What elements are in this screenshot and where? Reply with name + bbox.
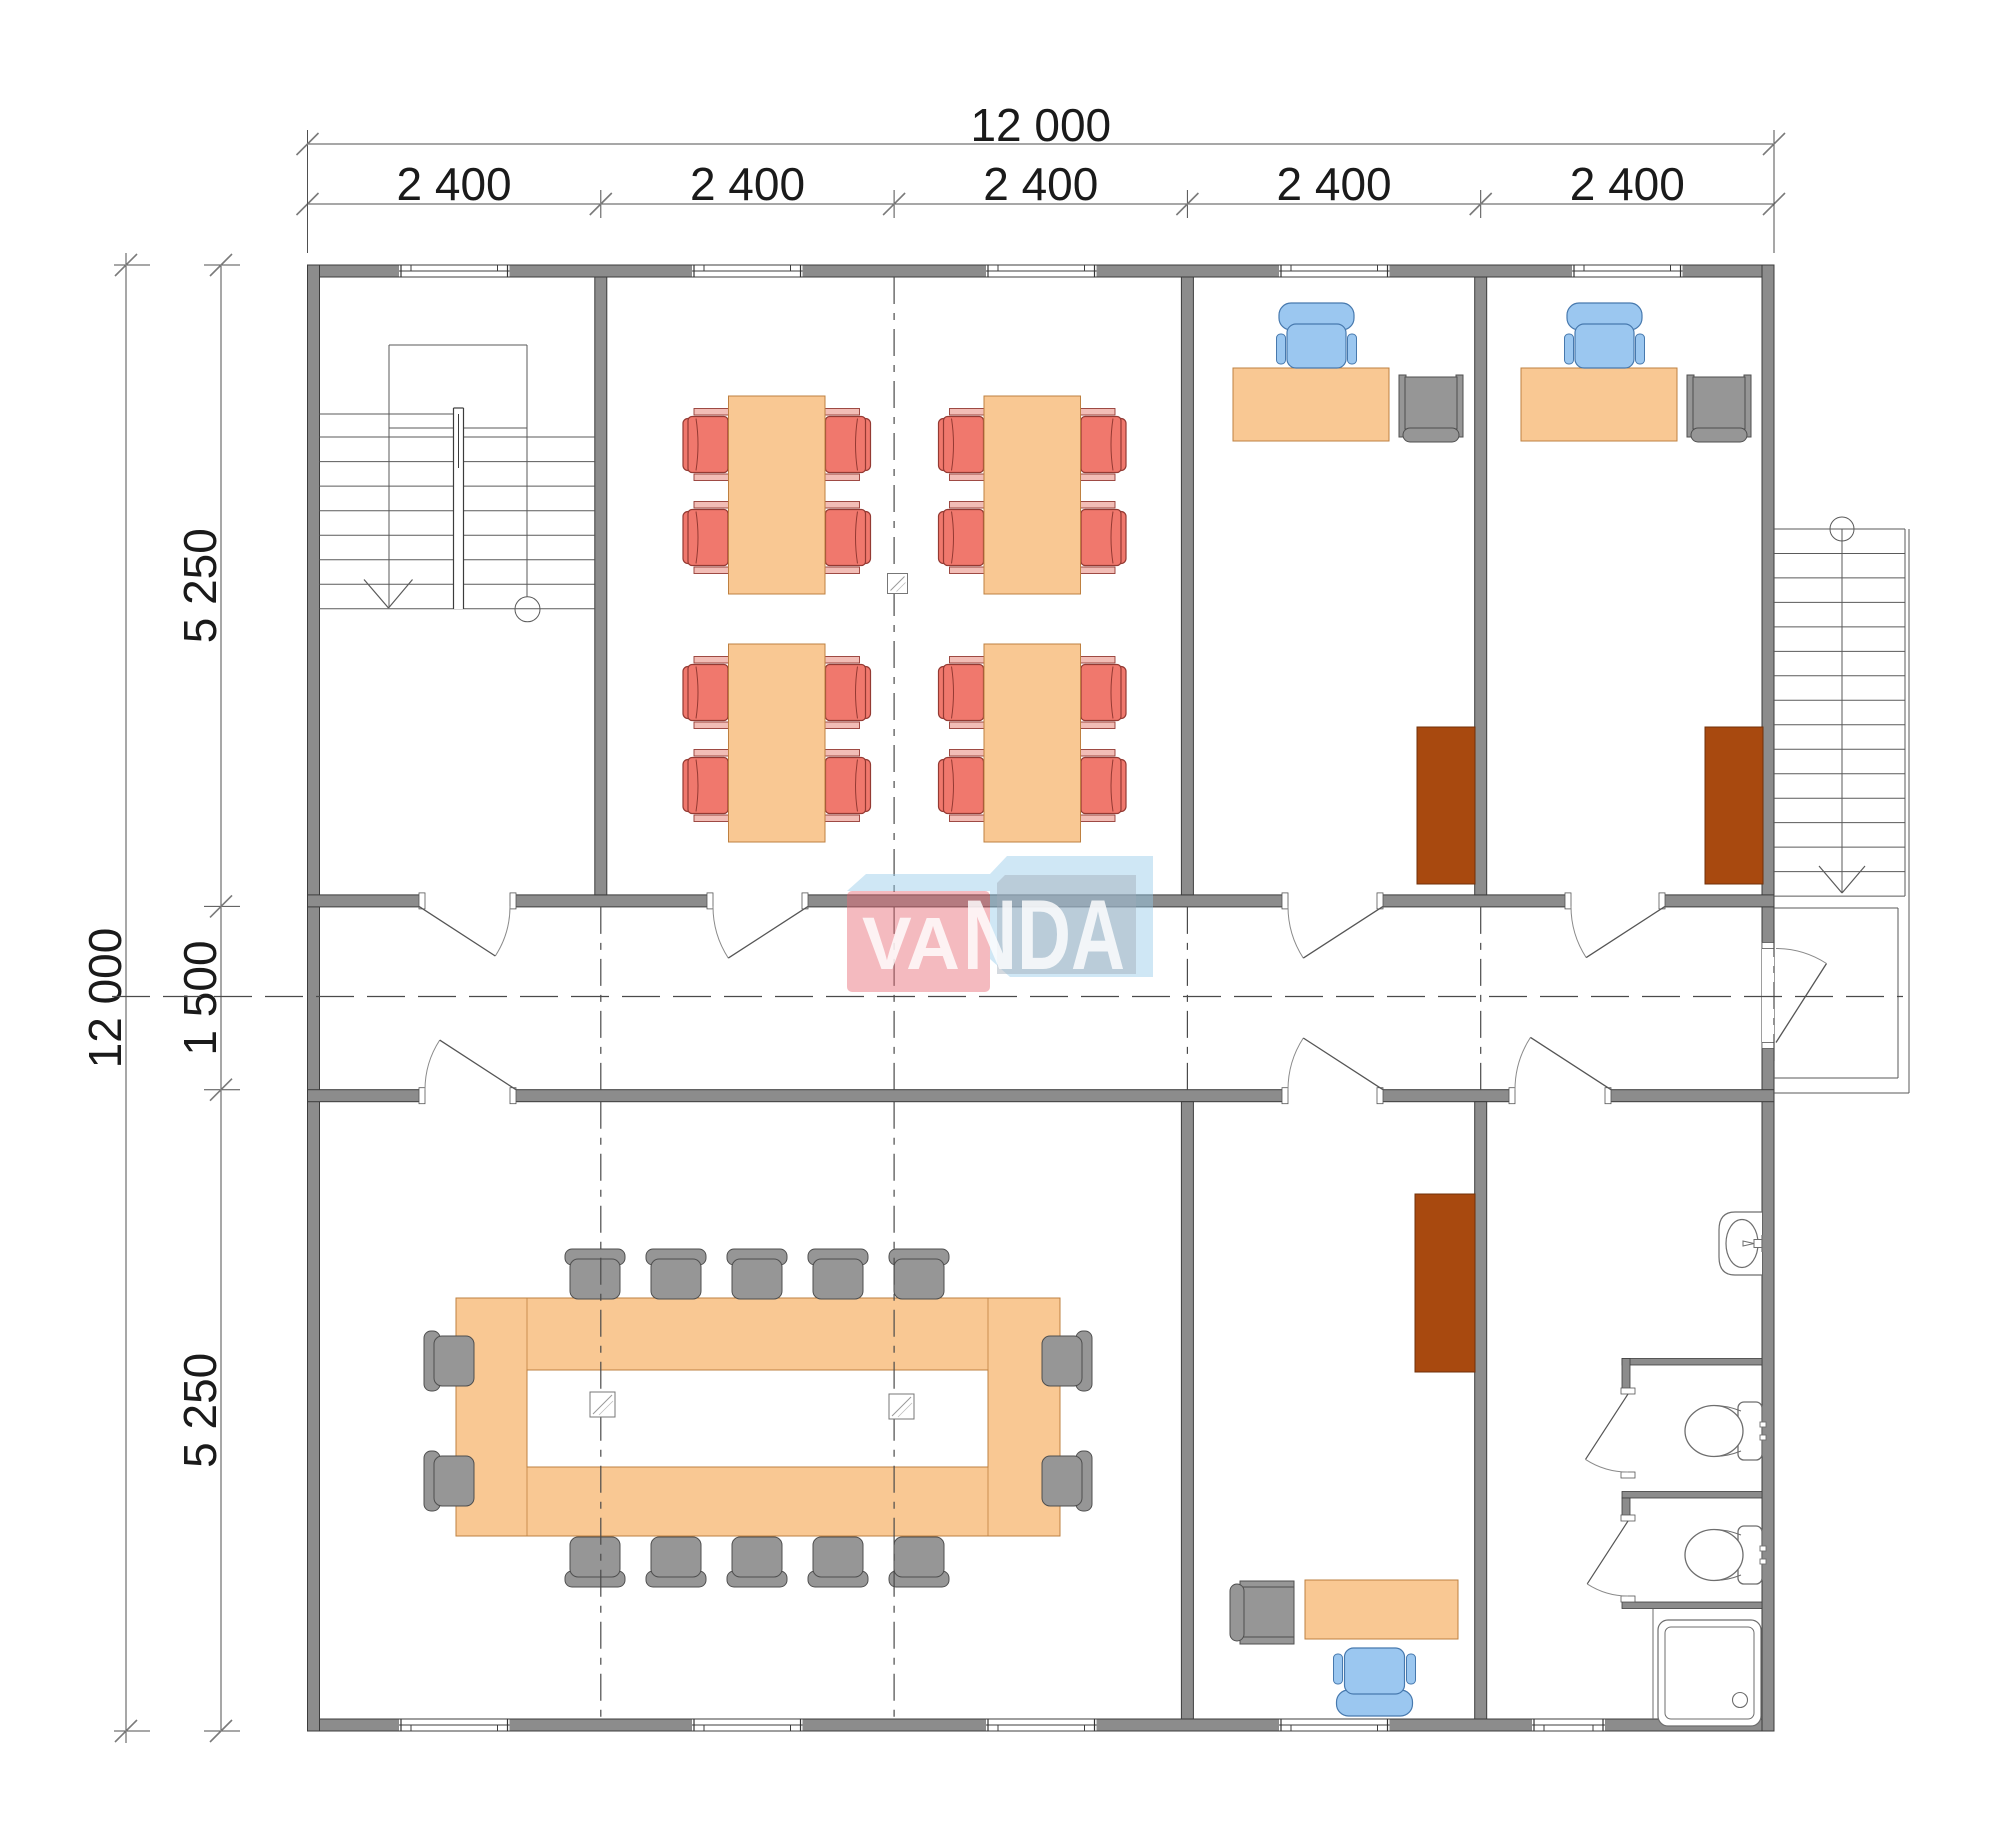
svg-text:2 400: 2 400	[1570, 158, 1685, 210]
svg-text:12 000: 12 000	[79, 928, 131, 1069]
svg-text:5 250: 5 250	[174, 1353, 226, 1468]
svg-text:2 400: 2 400	[397, 158, 512, 210]
svg-text:2 400: 2 400	[1277, 158, 1392, 210]
svg-text:5 250: 5 250	[174, 528, 226, 643]
svg-text:NDA: NDA	[963, 879, 1125, 990]
svg-text:VA: VA	[862, 902, 960, 985]
svg-text:1 500: 1 500	[174, 940, 226, 1055]
svg-text:12 000: 12 000	[970, 99, 1111, 151]
svg-text:2 400: 2 400	[983, 158, 1098, 210]
svg-text:2 400: 2 400	[690, 158, 805, 210]
